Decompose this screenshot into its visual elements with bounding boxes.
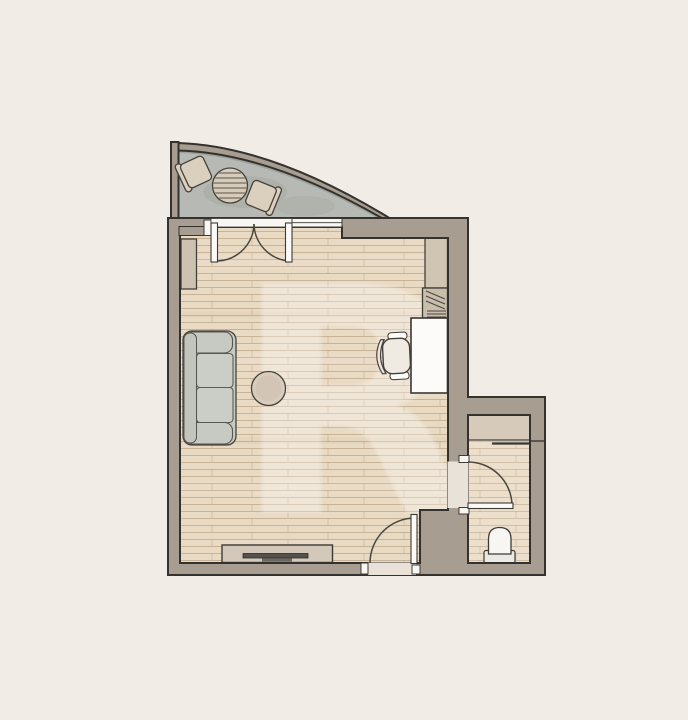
sofa-cushion: [197, 388, 234, 423]
tv: [243, 554, 308, 559]
door-leaf: [411, 515, 417, 564]
sofa-backrest: [184, 333, 197, 443]
bathroom-closet: [468, 415, 530, 444]
balcony-left-wall: [171, 142, 179, 219]
door-jamb-cap: [361, 563, 368, 574]
door-jamb-cap: [204, 220, 211, 236]
floor-plan-svg: R: [0, 0, 688, 720]
door-leaf: [211, 223, 218, 262]
tv-sideboard: [222, 545, 333, 563]
door-threshold: [211, 219, 292, 228]
floor-plan-canvas: R: [0, 0, 688, 720]
open-shelf: [423, 288, 448, 318]
office-chair-seat: [382, 338, 411, 374]
sofa: [183, 331, 236, 445]
coffee-table: [252, 372, 286, 406]
radiator-shelf: [181, 239, 197, 289]
door-jamb-cap: [459, 456, 469, 463]
desk: [411, 318, 448, 393]
door-leaf: [286, 223, 293, 262]
window-top: [292, 219, 342, 228]
coffee-table-shade: [256, 376, 282, 402]
wardrobe-column: [425, 238, 448, 288]
door-leaf: [468, 503, 513, 509]
sofa-cushion: [197, 354, 234, 388]
toilet-bowl: [489, 528, 512, 555]
door-jamb-cap: [412, 565, 420, 574]
concrete-stain: [275, 196, 335, 216]
bathroom-door-opening: [448, 462, 469, 509]
tv-stand: [262, 559, 292, 562]
entry-threshold: [368, 563, 416, 576]
